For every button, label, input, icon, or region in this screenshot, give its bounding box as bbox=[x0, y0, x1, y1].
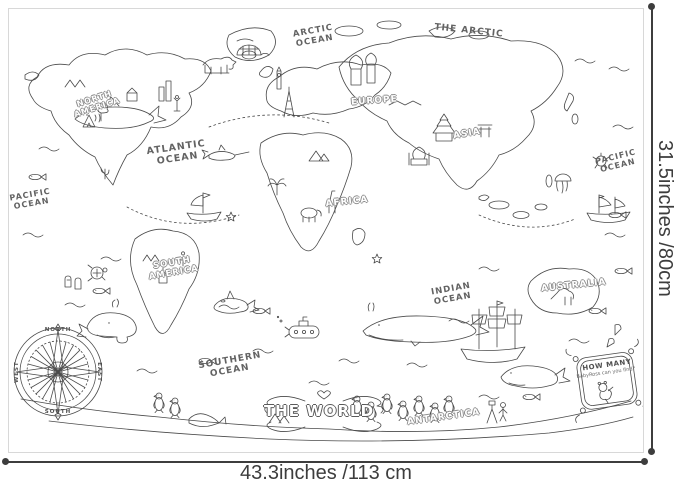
product-image: ARCTIC OCEAN THE ARCTIC PACIFIC OCEAN PA… bbox=[0, 0, 679, 487]
explorer-icon bbox=[487, 401, 507, 423]
seal-icon bbox=[189, 414, 226, 427]
moai-icon bbox=[65, 276, 81, 289]
how-many-sign-frame bbox=[566, 339, 643, 422]
continent-europe bbox=[242, 51, 391, 117]
babyross-character-icon bbox=[598, 380, 615, 403]
blue-whale-icon bbox=[363, 303, 489, 346]
width-dimension-label: 43.3inches /113 cm bbox=[8, 462, 644, 485]
sailing-ship-icon bbox=[587, 195, 630, 223]
compass-east-label: EAST bbox=[96, 357, 102, 387]
tall-ship-icon bbox=[461, 301, 525, 363]
continent-north-america bbox=[25, 49, 211, 185]
compass-west-label: WEST bbox=[14, 357, 20, 387]
pirate-ship-icon bbox=[187, 193, 221, 221]
continent-africa bbox=[260, 133, 365, 251]
continent-south-america bbox=[130, 229, 199, 333]
ocean-waves bbox=[23, 59, 633, 399]
continent-asia bbox=[339, 35, 578, 218]
island-greenland bbox=[227, 28, 276, 61]
world-coloring-poster: ARCTIC OCEAN THE ARCTIC PACIFIC OCEAN PA… bbox=[8, 8, 644, 453]
compass-rose-icon bbox=[14, 324, 102, 420]
orca-icon bbox=[214, 291, 259, 313]
igloo-icon bbox=[237, 45, 269, 55]
sea-turtle-icon bbox=[88, 265, 107, 281]
jellyfish-icon bbox=[555, 174, 571, 193]
dimension-dot-bottom bbox=[648, 448, 655, 455]
poster-title: THE WORLD bbox=[257, 403, 381, 420]
whale-icon bbox=[77, 299, 136, 343]
compass-south-label: SOUTH bbox=[40, 409, 76, 415]
swordfish-icon bbox=[202, 145, 249, 160]
sperm-whale-icon bbox=[501, 366, 570, 388]
compass-north-label: NORTH bbox=[40, 327, 76, 333]
map-line-art bbox=[9, 9, 643, 452]
dimension-dot-top bbox=[648, 3, 655, 10]
height-dimension-label: 31.5inches /80cm bbox=[653, 140, 676, 297]
route-lines bbox=[127, 115, 575, 227]
submarine-icon bbox=[277, 316, 319, 338]
